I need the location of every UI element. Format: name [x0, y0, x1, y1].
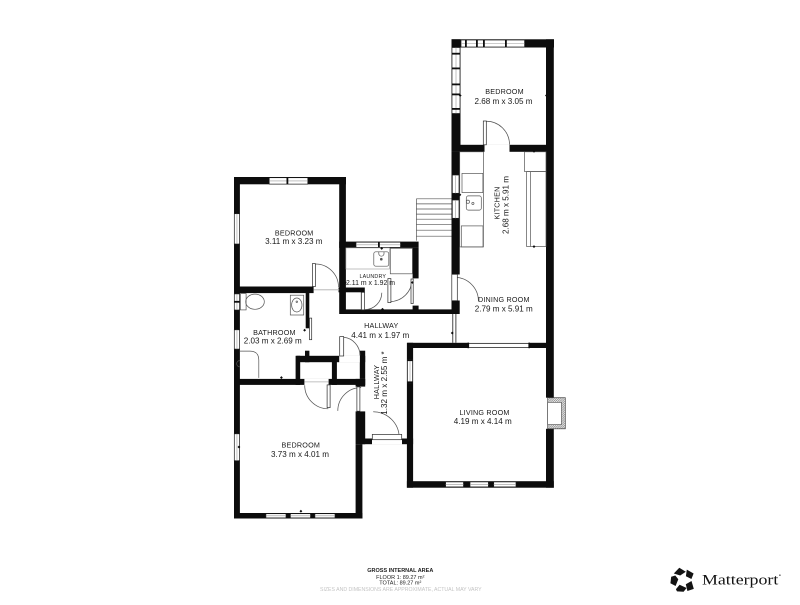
svg-text:KITCHEN: KITCHEN — [493, 187, 502, 220]
svg-text:2.68 m x 3.05 m: 2.68 m x 3.05 m — [474, 97, 532, 106]
svg-text:2.03 m x 2.69 m: 2.03 m x 2.69 m — [244, 336, 302, 345]
svg-text:SIZES AND DIMENSIONS ARE APPRO: SIZES AND DIMENSIONS ARE APPROXIMATE, AC… — [320, 587, 482, 593]
svg-text:3.73 m x 4.01 m: 3.73 m x 4.01 m — [271, 450, 329, 459]
svg-text:4.19 m x 4.14 m: 4.19 m x 4.14 m — [454, 417, 512, 426]
svg-text:4.41 m x 1.97 m: 4.41 m x 1.97 m — [351, 331, 409, 340]
svg-text:BEDROOM: BEDROOM — [282, 441, 321, 450]
svg-text:TOTAL: 89.27 m²: TOTAL: 89.27 m² — [379, 581, 421, 587]
svg-text:HALLWAY: HALLWAY — [364, 321, 398, 330]
svg-text:Matterport: Matterport — [702, 573, 778, 589]
svg-text:BEDROOM: BEDROOM — [485, 87, 524, 96]
svg-text:GROSS INTERNAL AREA: GROSS INTERNAL AREA — [367, 568, 433, 574]
svg-text:1.32 m x 2.55 m *: 1.32 m x 2.55 m * — [380, 350, 389, 414]
svg-text:2.79 m x 5.91 m: 2.79 m x 5.91 m — [475, 304, 533, 313]
svg-text:2.68 m x 5.91 m: 2.68 m x 5.91 m — [502, 176, 511, 234]
svg-text:BEDROOM: BEDROOM — [275, 228, 314, 237]
svg-text:3.11 m x 3.23 m: 3.11 m x 3.23 m — [265, 237, 323, 246]
svg-text:DINING ROOM: DINING ROOM — [478, 295, 530, 304]
svg-text:2.11 m x 1.92 m: 2.11 m x 1.92 m — [346, 280, 395, 287]
svg-text:LIVING ROOM: LIVING ROOM — [459, 408, 509, 417]
svg-text:LAUNDRY: LAUNDRY — [359, 274, 386, 280]
